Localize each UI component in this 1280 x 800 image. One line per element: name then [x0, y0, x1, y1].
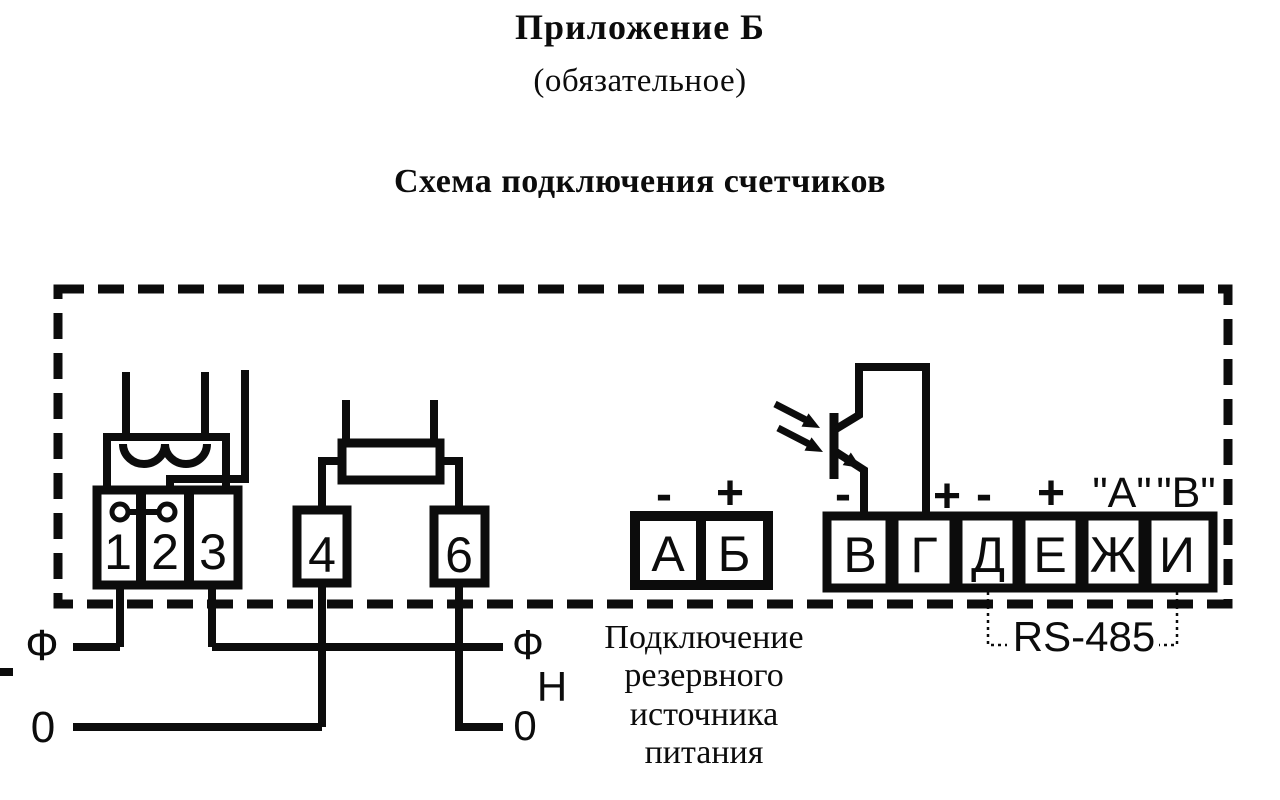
voltage-circuit: 4 6 — [297, 400, 485, 583]
caption-line: резервного — [624, 657, 783, 694]
current-transformer-symbol — [107, 370, 245, 490]
neutral-right-label: 0 — [513, 702, 536, 749]
test-link-contact — [159, 504, 175, 520]
minus-sign: - — [835, 468, 851, 521]
caption-line: источника — [630, 696, 778, 733]
plus-sign: + — [933, 470, 961, 523]
plus-sign: + — [716, 467, 744, 520]
rs485-bus-label: RS-485 — [1013, 613, 1155, 660]
interface-terminal-block: В Г Д Е Ж И - + - + "A" "B" — [827, 467, 1216, 588]
terminal-label-D: Д — [971, 527, 1005, 583]
terminal-label-4: 4 — [308, 527, 336, 583]
rs485-line-b-label: "B" — [1156, 469, 1215, 517]
caption-line: питания — [645, 734, 764, 771]
current-terminal-block: 1 2 3 — [97, 490, 238, 585]
minus-sign: - — [656, 468, 672, 521]
backup-terminal-block: А Б - + — [635, 467, 768, 585]
terminal-label-I: И — [1159, 527, 1195, 583]
mains-wiring: Ф 0 Ф Н 0 — [0, 583, 567, 752]
light-ray-arrow-icon — [778, 428, 809, 444]
ct-winding-humps — [123, 444, 207, 464]
terminal-label-A: А — [651, 526, 685, 582]
load-label: Н — [537, 663, 567, 710]
terminal-label-E: Е — [1033, 527, 1066, 583]
terminal-label-3: 3 — [199, 524, 227, 580]
phase-right-label: Ф — [512, 621, 544, 668]
neutral-left-label: 0 — [31, 703, 55, 752]
terminal-label-6: 6 — [445, 527, 473, 583]
wiring-diagram: 1 2 3 4 6 Ф 0 Ф Н 0 А Б - + — [0, 0, 1280, 800]
terminal-label-V: В — [843, 527, 876, 583]
test-link-contact — [112, 504, 128, 520]
terminal-label-B: Б — [718, 526, 751, 582]
rs485-line-a-label: "A" — [1092, 469, 1151, 517]
phase-left-label: Ф — [25, 621, 58, 670]
backup-power-caption: Подключение резервного источника питания — [604, 619, 803, 771]
plus-sign: + — [1037, 467, 1065, 520]
minus-sign: - — [976, 468, 992, 521]
terminal-label-G: Г — [910, 527, 937, 583]
voltage-circuit-resistor — [342, 443, 440, 480]
terminal-label-1: 1 — [104, 524, 132, 580]
caption-line: Подключение — [604, 619, 803, 656]
terminal-label-ZH: Ж — [1090, 527, 1136, 583]
light-ray-arrow-icon — [775, 404, 806, 420]
terminal-label-2: 2 — [151, 524, 179, 580]
